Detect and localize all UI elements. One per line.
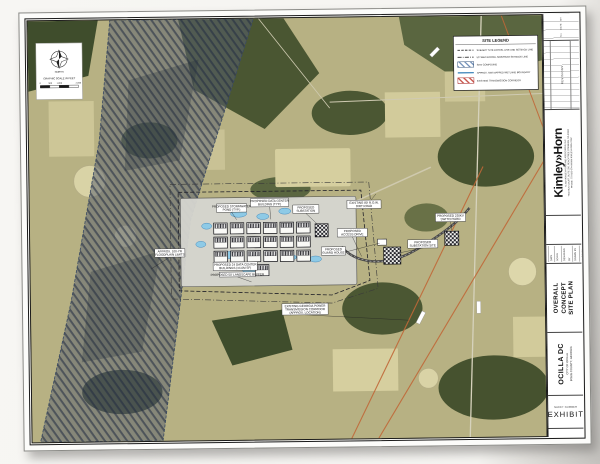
site-legend-box: SITE LEGEND SUBJECT SITE PARCEL LINE AND… xyxy=(453,35,538,90)
revision-table: REVISIONS xyxy=(544,41,580,110)
svg-text:PROPOSED 24 DATA CENTERBUILDIN: PROPOSED 24 DATA CENTERBUILDINGS (±4.0M … xyxy=(214,262,257,270)
substation-site-block xyxy=(384,247,401,264)
title-block-spacer xyxy=(546,216,581,245)
legend-title: SITE LEGEND xyxy=(482,38,509,43)
sheet-number-value: EXHIBIT xyxy=(548,409,583,418)
svg-text:EXISTING GEORGIA POWERTRANSMIS: EXISTING GEORGIA POWERTRANSMISSION CORRI… xyxy=(285,304,327,315)
north-scale-box: NORTH GRAPHIC SCALE IN FEET 0 500 1,000 … xyxy=(36,43,83,100)
svg-text:SITE COMPOUND: SITE COMPOUND xyxy=(477,63,498,66)
rev-by-label: BY xyxy=(560,17,562,20)
svg-text:2,000: 2,000 xyxy=(76,83,82,85)
map-area: PROPOSED STORMWATERPOND (TYP.) PROPOSED … xyxy=(26,14,547,443)
substation-block xyxy=(315,224,328,237)
rev-date-label: DATE xyxy=(560,23,562,30)
firm-logo-block: Kimley»Horn © 2024 KIMLEY-HORN AND ASSOC… xyxy=(545,110,581,216)
svg-text:PROPOSED 50' LANDSCAPE BUFFER: PROPOSED 50' LANDSCAPE BUFFER xyxy=(211,272,265,277)
logo-subtext-3: PHONE: 770-825-0744 WWW.KIMLEY-HORN.COM xyxy=(570,112,574,212)
sheet-title-line2: SITE PLAN xyxy=(568,266,576,330)
kimley-horn-logo: Kimley»Horn xyxy=(551,112,565,212)
callout: PROPOSEDSUBSTATION SITE xyxy=(408,239,438,248)
sheet-number-label: SHEET NUMBER xyxy=(554,405,577,408)
info-row: DATE xyxy=(548,246,555,262)
callout: PROPOSEDACCESS DRIVE xyxy=(337,228,367,237)
callout: PROPOSED 50' LANDSCAPE BUFFER xyxy=(211,272,265,277)
callout: PROPOSED 230KVSWITCHYARD xyxy=(435,213,465,222)
sheet-number-block: SHEET NUMBER EXHIBIT xyxy=(548,396,583,429)
callout: PROPOSED STORMWATERPOND (TYP.) xyxy=(212,204,252,213)
project-county: IRWIN COUNTY, GEORGIA xyxy=(569,335,573,393)
svg-text:PROPOSED 230KVSWITCHYARD: PROPOSED 230KVSWITCHYARD xyxy=(437,214,464,222)
callout: PROPOSED DATA CENTERBUILDING (TYP.) xyxy=(250,198,289,207)
title-block: No. DATE BY REVISIONS Kimley»Horn © 2024… xyxy=(542,14,583,437)
project-name-block: OCILLA DC CITY OF OCILLA IRWIN COUNTY, G… xyxy=(547,333,583,396)
revisions-label: REVISIONS xyxy=(559,42,564,108)
rev-no-label: No. xyxy=(560,33,562,37)
info-row: DRAWN BY xyxy=(573,246,580,262)
guard-house-block xyxy=(377,239,386,245)
info-row: CHECKED BY xyxy=(579,246,581,262)
callout: APPROX. 100-YRFLOODPLAIN LIMITS xyxy=(155,249,185,258)
switchyard-block xyxy=(445,231,459,245)
info-row: SCALE xyxy=(555,246,562,262)
callout: EXISTING 80' R.O.W.DIRT ROAD xyxy=(347,200,381,209)
revision-header: No. DATE BY xyxy=(543,14,578,41)
sheet-title-block: OVERALL CONCEPT SITE PLAN xyxy=(546,264,582,333)
svg-text:PROPOSEDACCESS DRIVE: PROPOSEDACCESS DRIVE xyxy=(341,229,363,237)
callout: PROPOSEDGUARD HOUSE xyxy=(321,247,345,256)
project-info-table: PROJECT NO. DATE SCALE DESIGNED BY DRAWN… xyxy=(546,245,581,264)
svg-text:50' SEMI PARCEL SIDE/REAR SETB: 50' SEMI PARCEL SIDE/REAR SETBACK LINE xyxy=(477,55,529,59)
site-plan-map: PROPOSED STORMWATERPOND (TYP.) PROPOSED … xyxy=(27,15,546,442)
scale-bar xyxy=(40,85,78,88)
callout: PROPOSEDSUBSTATION xyxy=(293,205,319,214)
sheet-frame: PROPOSED STORMWATERPOND (TYP.) PROPOSED … xyxy=(24,12,585,446)
svg-text:APPROX. 100-YRFLOODPLAIN LIMIT: APPROX. 100-YRFLOODPLAIN LIMITS xyxy=(155,249,185,257)
scale-title: GRAPHIC SCALE IN FEET xyxy=(43,76,75,80)
callout: EXISTING GEORGIA POWERTRANSMISSION CORRI… xyxy=(282,303,328,315)
svg-text:PROPOSEDGUARD HOUSE: PROPOSEDGUARD HOUSE xyxy=(322,247,344,255)
plan-sheet: PROPOSED STORMWATERPOND (TYP.) PROPOSED … xyxy=(18,6,591,452)
svg-text:1,000: 1,000 xyxy=(57,83,63,85)
north-label: NORTH xyxy=(55,71,64,74)
svg-text:EXISTING TRANSMISSION CORRIDOR: EXISTING TRANSMISSION CORRIDOR xyxy=(477,79,521,83)
title-block-tail xyxy=(548,429,583,437)
callout: PROPOSED 24 DATA CENTERBUILDINGS (±4.0M … xyxy=(213,262,257,271)
sheet-title-line1: OVERALL CONCEPT xyxy=(553,266,569,330)
info-row: DESIGNED BY xyxy=(561,246,573,262)
svg-text:PROPOSEDSUBSTATION: PROPOSEDSUBSTATION xyxy=(296,205,315,213)
